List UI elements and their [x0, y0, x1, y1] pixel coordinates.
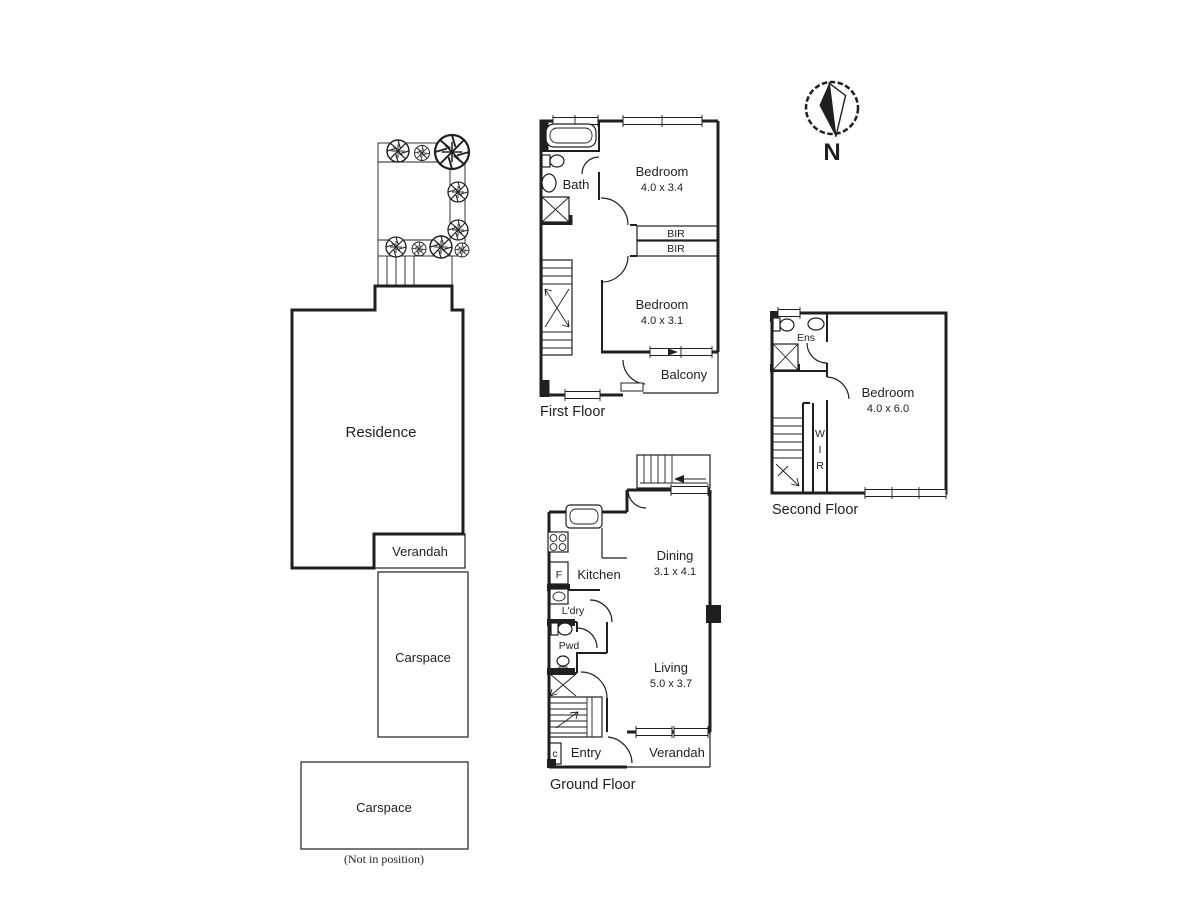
- first-floor-windows: [553, 115, 712, 401]
- bedroom2-label: Bedroom: [636, 297, 689, 312]
- residence-label: Residence: [346, 424, 417, 441]
- site-plan: Residence Verandah Carspace Carspace (No…: [292, 135, 469, 866]
- ensuite-door-arc: [807, 343, 827, 363]
- floorplan-page: Residence Verandah Carspace Carspace (No…: [0, 0, 1200, 900]
- bir2-label: BIR: [667, 243, 685, 255]
- tree-icon: [430, 236, 452, 258]
- bath-door-arc: [582, 157, 599, 174]
- carspace1-label: Carspace: [395, 650, 451, 665]
- second-floor-stairs: [772, 418, 803, 486]
- first-floor-stairs: [542, 260, 572, 355]
- tree-icon: [435, 135, 469, 169]
- shower-icon: [542, 197, 569, 222]
- ground-floor-windows: [636, 484, 708, 738]
- garden-courtyard: [378, 135, 469, 258]
- tree-icon: [448, 220, 468, 240]
- bath-label: Bath: [563, 177, 590, 192]
- ground-floor-outer-walls: [549, 490, 710, 767]
- garden-steps: [378, 256, 452, 286]
- cupboard-label: c: [552, 748, 557, 760]
- cooktop-icon: [548, 532, 568, 552]
- first-floor-bath-fixtures: [542, 124, 596, 222]
- basin-icon: [557, 656, 569, 666]
- ground-verandah-label: Verandah: [649, 745, 705, 760]
- first-floor-plan: Bath Bedroom 4.0 x 3.4 BIR BIR Bedroom 4…: [540, 115, 719, 420]
- hall-door-arc: [581, 672, 607, 698]
- first-floor-title: First Floor: [540, 404, 605, 420]
- fridge-label: F: [556, 569, 562, 581]
- toilet-icon: [551, 623, 558, 635]
- balcony-label: Balcony: [661, 367, 708, 382]
- bedroom2-door-arc: [602, 256, 628, 282]
- tree-icon: [415, 146, 430, 161]
- ground-floor-plan: F Kitchen Dining 3.1 x 4.1 L'dry Pwd Liv…: [547, 455, 721, 793]
- sink-icon: [566, 505, 602, 528]
- tree-icon: [455, 243, 469, 257]
- tree-icon: [448, 182, 468, 202]
- second-bedroom-label: Bedroom: [862, 385, 915, 400]
- powder-door-arc: [577, 628, 597, 648]
- second-floor-title: Second Floor: [772, 502, 858, 518]
- shower-icon: [773, 344, 798, 370]
- north-label: N: [823, 139, 840, 166]
- living-dims: 5.0 x 3.7: [650, 678, 692, 690]
- ensuite-fixtures: [773, 318, 824, 370]
- balcony-door-arc: [623, 360, 645, 384]
- bedroom1-dims: 4.0 x 3.4: [641, 182, 683, 194]
- ground-floor-title: Ground Floor: [550, 777, 636, 793]
- bedroom1-label: Bedroom: [636, 164, 689, 179]
- second-floor-plan: Ens Bedroom 4.0 x 6.0 W I R Second Floor: [770, 307, 946, 518]
- kitchen-bench: [602, 528, 627, 558]
- powder-label: Pwd: [559, 640, 580, 652]
- carspace2-label: Carspace: [356, 800, 412, 815]
- laundry-door-arc: [590, 600, 612, 622]
- living-label: Living: [654, 660, 688, 675]
- compass: N: [806, 82, 858, 166]
- ground-floor-entry-stairs: [637, 455, 710, 488]
- basin-icon: [808, 318, 824, 330]
- basin-icon: [542, 174, 556, 192]
- second-bedroom-door-arc: [827, 377, 849, 399]
- tree-icon: [412, 242, 426, 256]
- toilet-icon: [542, 155, 550, 167]
- kitchen-label: Kitchen: [577, 567, 620, 582]
- wir-label-i: I: [819, 444, 822, 456]
- ground-floor-stairs: [549, 674, 602, 737]
- laundry-label: L'dry: [562, 605, 585, 617]
- wir-label-r: R: [816, 460, 824, 472]
- verandah-door-arc: [608, 737, 632, 763]
- laundry-fixtures: [550, 589, 568, 604]
- tree-icon: [386, 237, 406, 257]
- wir-label-w: W: [815, 428, 825, 440]
- front-door-arc: [628, 490, 646, 508]
- ensuite-label: Ens: [797, 332, 815, 344]
- site-verandah-label: Verandah: [392, 544, 448, 559]
- bir1-label: BIR: [667, 228, 685, 240]
- floorplan-drawing: Residence Verandah Carspace Carspace (No…: [0, 0, 1200, 900]
- bedroom2-dims: 4.0 x 3.1: [641, 315, 683, 327]
- dining-label: Dining: [657, 548, 694, 563]
- chimney-block: [706, 605, 721, 623]
- bathtub-icon: [546, 124, 596, 147]
- bedroom1-door-arc: [601, 198, 628, 225]
- dining-dims: 3.1 x 4.1: [654, 566, 696, 578]
- second-bedroom-dims: 4.0 x 6.0: [867, 403, 909, 415]
- tree-icon: [387, 140, 409, 162]
- not-in-position-note: (Not in position): [344, 852, 424, 866]
- toilet-icon: [773, 318, 780, 331]
- entry-label: Entry: [571, 745, 602, 760]
